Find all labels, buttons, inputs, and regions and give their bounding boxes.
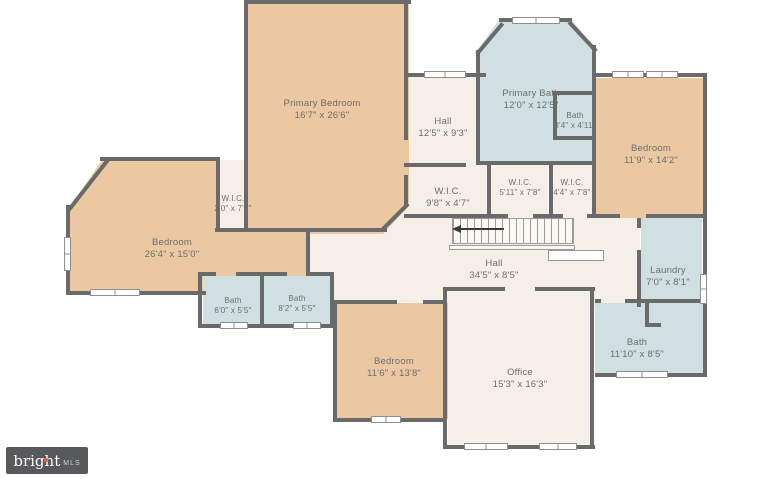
wall-segment (215, 228, 387, 232)
room-label-wic-mid: W.I.C. 5'11" x 7'8" (499, 178, 540, 197)
room-label-bath-upper: Bath 3'4" x 4'11" (554, 111, 595, 130)
stair-landing (548, 250, 604, 261)
room-name: Primary Bath (502, 88, 559, 100)
wall-segment (330, 272, 334, 328)
wall-segment (260, 276, 264, 328)
room-label-bath-mid: Bath 8'2" x 5'5" (278, 294, 315, 313)
window (464, 443, 508, 450)
wall-segment (100, 157, 220, 161)
room-name: Laundry (646, 265, 690, 277)
room-name: Bath (278, 294, 315, 304)
window (700, 274, 707, 304)
room-dimensions: 7'0" x 8'1" (646, 277, 690, 289)
window (539, 443, 577, 450)
room-dimensions: 16'7" x 26'6" (284, 110, 361, 122)
wall-segment (443, 287, 447, 449)
wall-segment (443, 287, 505, 291)
room-label-office: Office 15'3" x 16'3" (493, 367, 548, 392)
stair-direction-arrowhead-icon (452, 225, 461, 233)
wall-segment (244, 0, 411, 4)
wall-segment (198, 272, 202, 328)
room-label-hall-main: Hall 34'5" x 8'5" (469, 258, 518, 283)
room-name: Office (493, 367, 548, 379)
wall-segment (333, 300, 397, 304)
wall-segment (587, 214, 620, 218)
logo-dot-icon (44, 458, 48, 462)
room-label-wic-narrow: W.I.C. 2'0" x 7'2" (214, 194, 251, 213)
window (612, 71, 644, 78)
room-dimensions: 11'9" x 14'2" (624, 155, 678, 167)
room-name: Bedroom (624, 143, 678, 155)
room-name: W.I.C. (214, 194, 251, 204)
wall-segment (592, 45, 596, 218)
room-name: Bath (610, 337, 664, 349)
wall-segment (306, 232, 310, 276)
room-dimensions: 8'2" x 5'5" (278, 304, 315, 314)
room-dimensions: 12'5" x 9'3" (418, 128, 467, 140)
room-label-primary-bedroom: Primary Bedroom 16'7" x 26'6" (284, 98, 361, 123)
wall-segment (595, 299, 601, 303)
window (512, 17, 560, 24)
wall-segment (476, 50, 480, 165)
wall-segment (404, 175, 408, 206)
wall-segment (549, 161, 553, 218)
room-name: Primary Bedroom (284, 98, 361, 110)
wall-segment (553, 136, 595, 140)
room-dimensions: 15'3" x 16'3" (493, 379, 548, 391)
room-laundry-area (641, 218, 702, 303)
room-dimensions: 34'5" x 8'5" (469, 270, 518, 282)
room-dimensions: 5'11" x 7'8" (499, 188, 540, 198)
wall-segment (590, 287, 594, 449)
wall-segment (404, 0, 408, 140)
floor-plan: Primary Bedroom 16'7" x 26'6" Primary Ba… (0, 0, 775, 479)
room-dimensions: 3'4" x 4'11" (554, 121, 595, 131)
room-label-bedroom-right: Bedroom 11'9" x 14'2" (624, 143, 678, 168)
room-label-wic-center: W.I.C. 9'8" x 4'7" (426, 186, 470, 211)
room-label-bedroom-left: Bedroom 26'4" x 15'0" (145, 237, 200, 262)
room-dimensions: 12'0" x 12'5" (502, 100, 559, 112)
room-name: W.I.C. (553, 178, 590, 188)
room-name: Hall (418, 116, 467, 128)
room-name: Bath (214, 296, 251, 306)
wall-segment (476, 161, 595, 165)
wall-segment (625, 299, 707, 303)
room-dimensions: 4'4" x 7'8" (553, 188, 590, 198)
room-dimensions: 2'0" x 7'2" (214, 204, 251, 214)
room-name: Bedroom (145, 237, 200, 249)
window (616, 371, 668, 378)
room-label-primary-bath: Primary Bath 12'0" x 12'5" (502, 88, 559, 113)
room-label-bath-right: Bath 11'10" x 8'5" (610, 337, 664, 362)
wall-segment (645, 323, 661, 327)
wall-segment (404, 163, 466, 167)
room-label-laundry: Laundry 7'0" x 8'1" (646, 265, 690, 290)
window (646, 71, 678, 78)
window (371, 416, 401, 423)
wall-segment (637, 218, 641, 228)
window (90, 289, 140, 296)
room-dimensions: 11'6" x 13'8" (367, 368, 421, 380)
logo-bright-text: bright (13, 452, 60, 470)
window (220, 322, 248, 329)
room-label-bedroom-bottom: Bedroom 11'6" x 13'8" (367, 356, 421, 381)
window (64, 237, 71, 271)
room-dimensions: 26'4" x 15'0" (145, 249, 200, 261)
brightmls-logo: brightMLS (6, 447, 88, 474)
wall-segment (535, 287, 595, 291)
logo-mls-text: MLS (63, 460, 80, 467)
room-dimensions: 6'0" x 5'5" (214, 306, 251, 316)
room-name: Bath (554, 111, 595, 121)
wall-segment (423, 300, 447, 304)
room-name: Hall (469, 258, 518, 270)
window (424, 71, 466, 78)
staircase (452, 218, 574, 244)
room-label-bath-left: Bath 6'0" x 5'5" (214, 296, 251, 315)
wall-segment (487, 161, 491, 218)
room-label-hall-upper: Hall 12'5" x 9'3" (418, 116, 467, 141)
room-label-wic-right: W.I.C. 4'4" x 7'8" (553, 178, 590, 197)
wall-segment (703, 73, 707, 377)
room-dimensions: 9'8" x 4'7" (426, 198, 470, 210)
wall-segment (646, 214, 707, 218)
stair-direction-arrow (460, 228, 504, 230)
room-name: W.I.C. (499, 178, 540, 188)
room-dimensions: 11'10" x 8'5" (610, 349, 664, 361)
window (293, 322, 321, 329)
room-name: W.I.C. (426, 186, 470, 198)
room-name: Bedroom (367, 356, 421, 368)
